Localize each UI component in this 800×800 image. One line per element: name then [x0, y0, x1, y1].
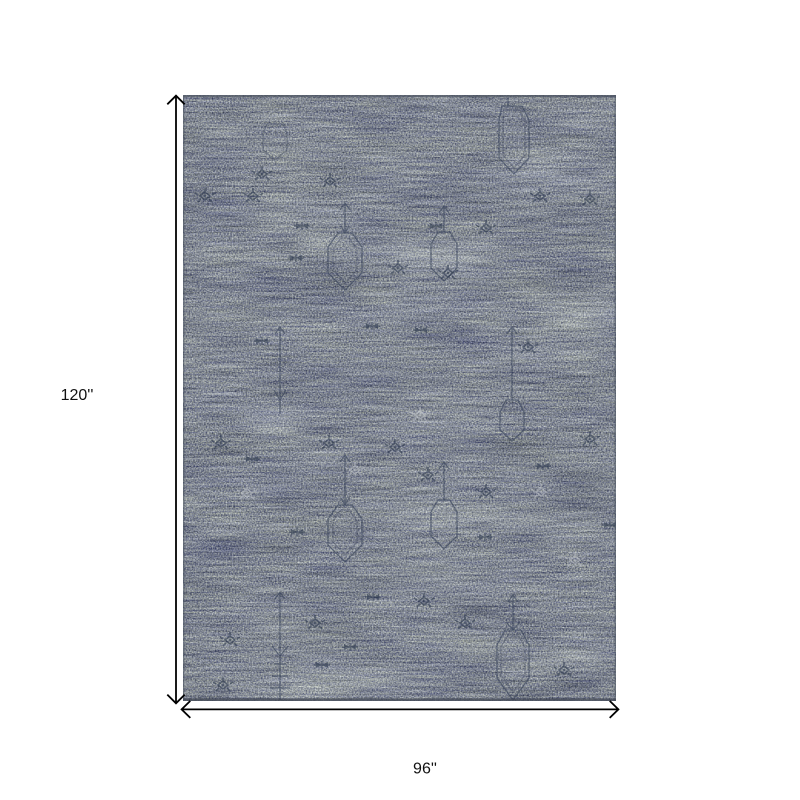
- svg-text:120'': 120'': [61, 387, 94, 404]
- svg-text:96'': 96'': [413, 761, 437, 778]
